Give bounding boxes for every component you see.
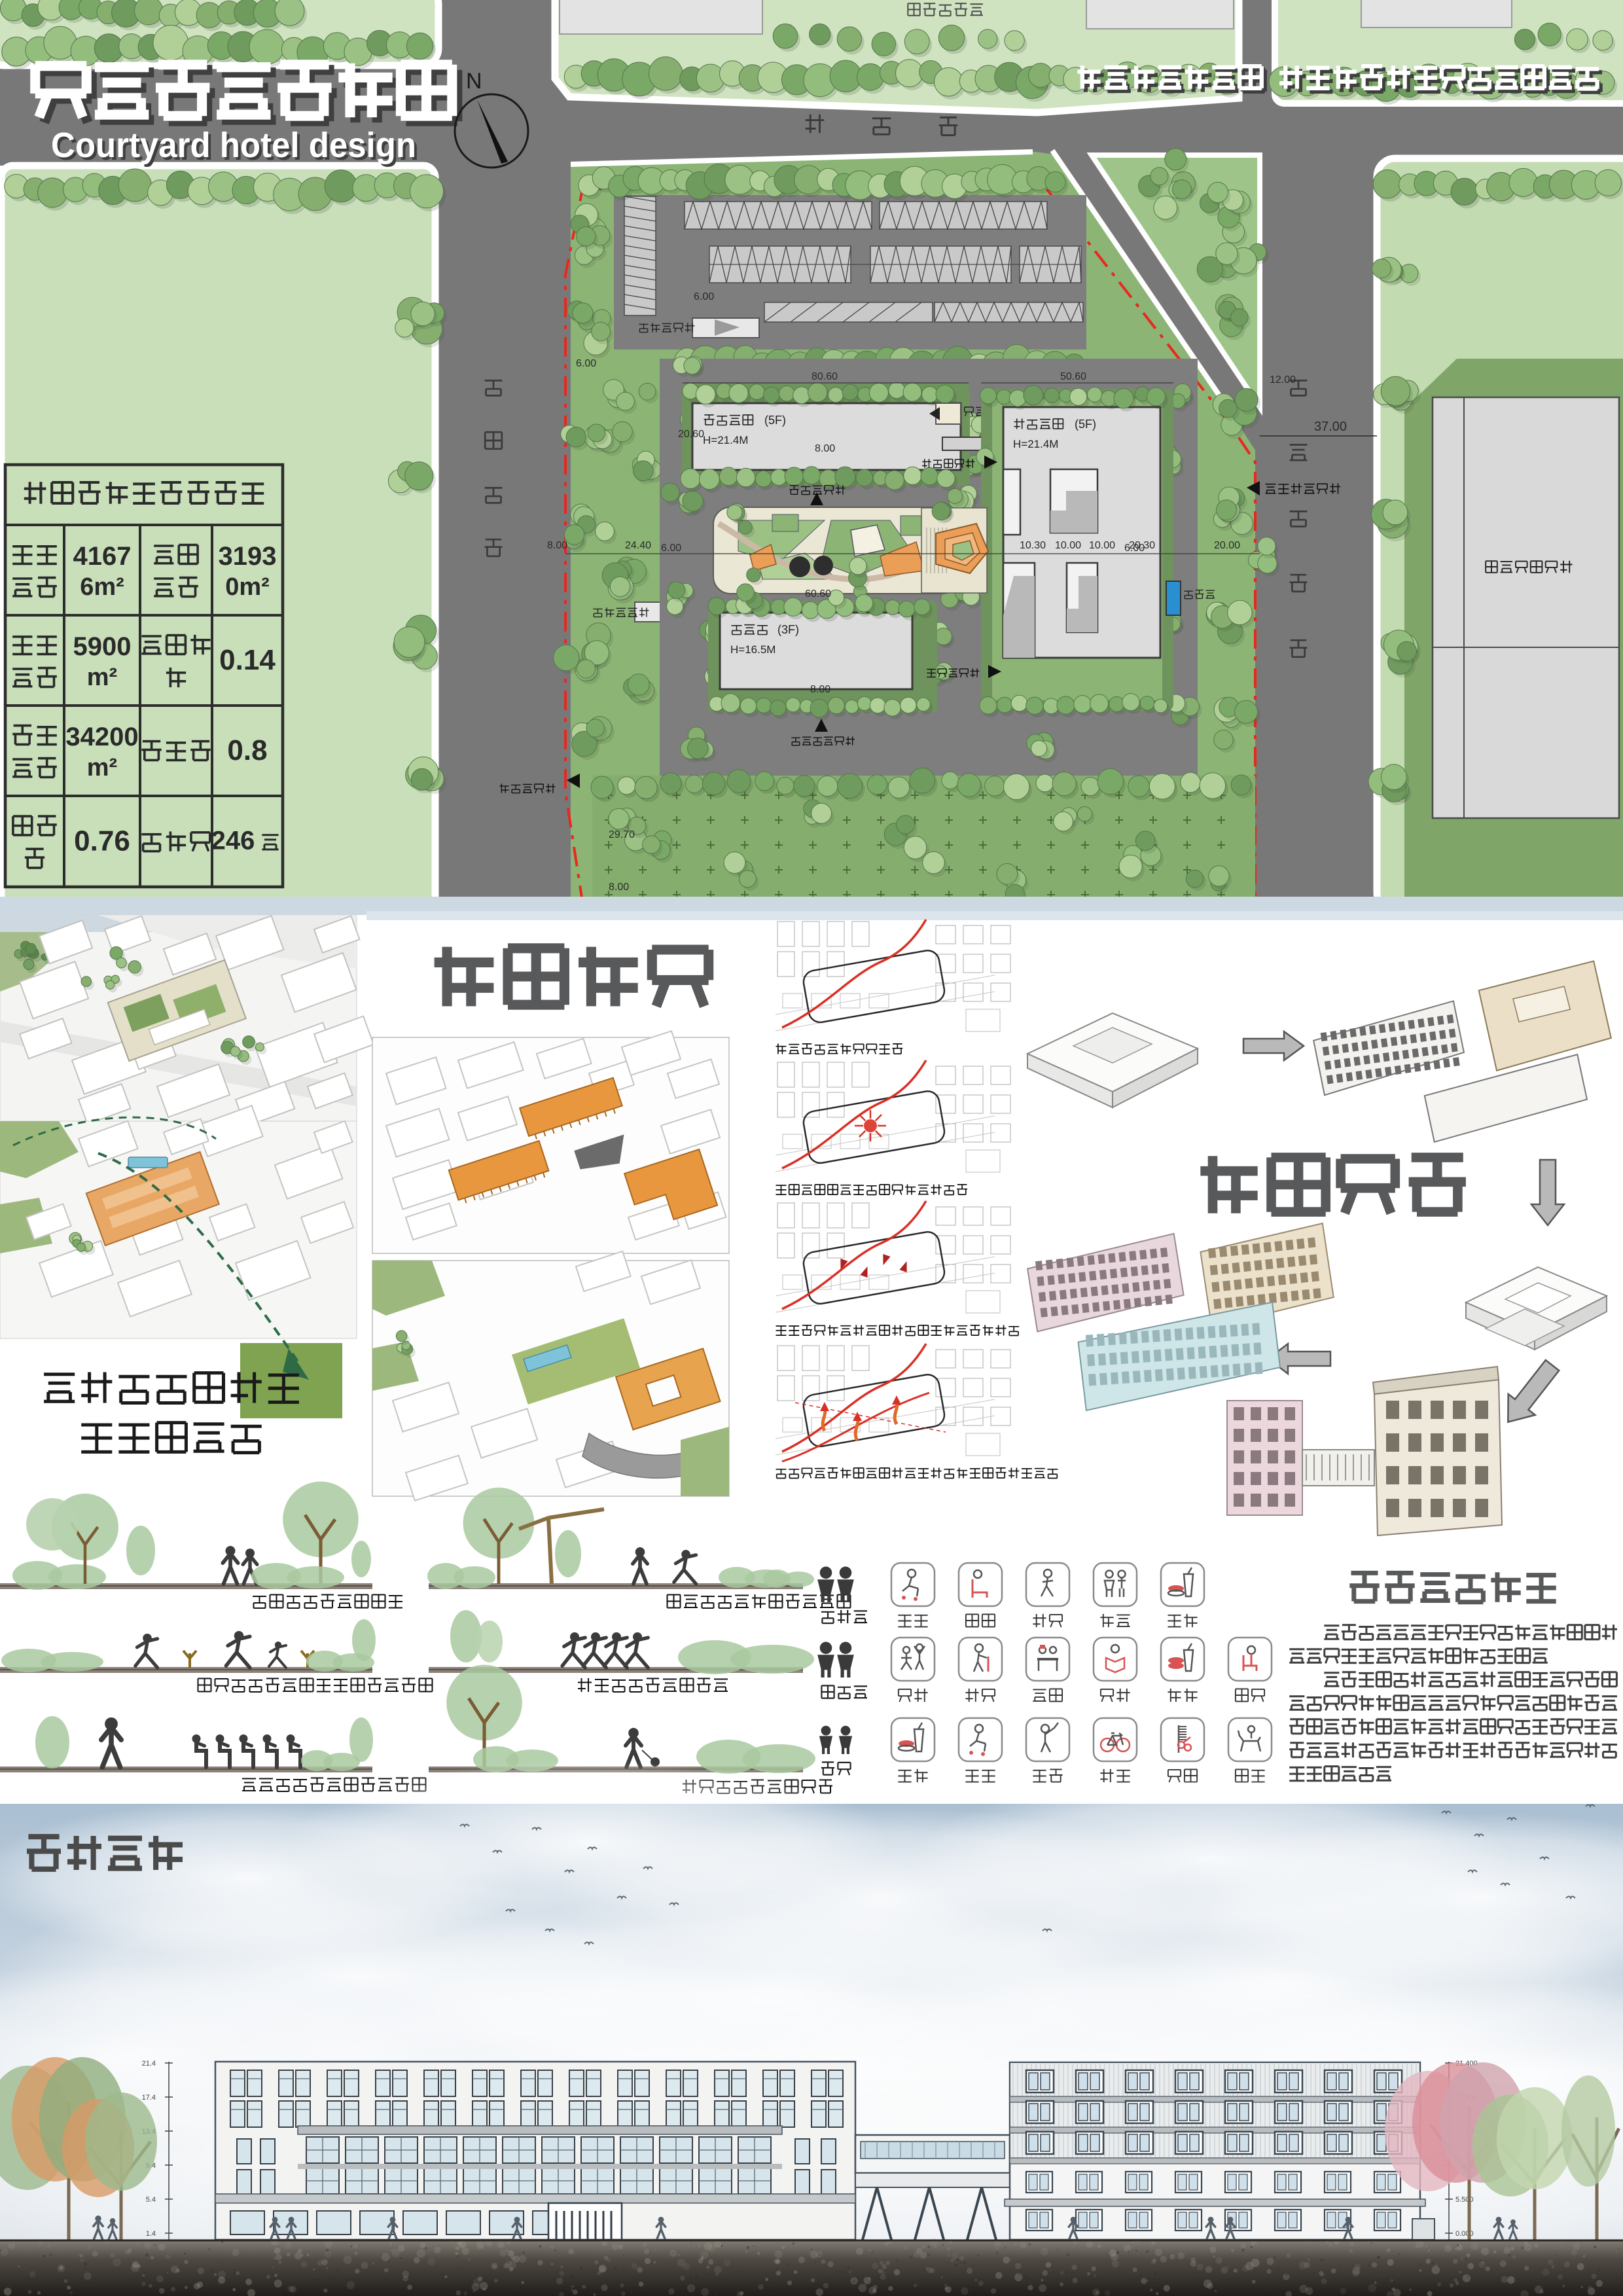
svg-text:8.00: 8.00 <box>609 882 629 893</box>
svg-text:29.70: 29.70 <box>609 829 635 840</box>
svg-text:5.4: 5.4 <box>146 2196 156 2204</box>
svg-text:Courtyard hotel design: Courtyard hotel design <box>51 126 416 165</box>
svg-text:8.00: 8.00 <box>810 684 830 695</box>
svg-text:0.76: 0.76 <box>74 825 130 857</box>
svg-text:12.00: 12.00 <box>1270 374 1296 386</box>
svg-text:H=16.5M: H=16.5M <box>730 643 776 656</box>
svg-text:21.4: 21.4 <box>142 2060 156 2068</box>
svg-text:50.60: 50.60 <box>1060 371 1086 382</box>
svg-text:6m²: 6m² <box>80 573 124 601</box>
svg-text:m²: m² <box>87 754 117 781</box>
svg-text:H=21.4M: H=21.4M <box>1013 438 1058 450</box>
svg-text:1.4: 1.4 <box>146 2230 156 2238</box>
svg-text:80.60: 80.60 <box>811 371 838 382</box>
svg-text:0m²: 0m² <box>225 573 270 601</box>
svg-text:6.00: 6.00 <box>576 358 596 369</box>
svg-text:m²: m² <box>87 664 117 691</box>
svg-text:0.14: 0.14 <box>219 644 276 676</box>
svg-text:20.60: 20.60 <box>678 429 704 440</box>
svg-text:3193: 3193 <box>219 542 277 571</box>
svg-text:8.00: 8.00 <box>815 443 835 454</box>
svg-text:5900: 5900 <box>73 632 132 661</box>
svg-text:20.00: 20.00 <box>1214 540 1240 551</box>
svg-text:0.8: 0.8 <box>227 734 267 766</box>
svg-text:6.00: 6.00 <box>694 291 714 302</box>
svg-text:10.00: 10.00 <box>1055 540 1081 551</box>
svg-text:24.40: 24.40 <box>625 540 651 551</box>
svg-text:17.4: 17.4 <box>142 2094 156 2102</box>
svg-text:4167: 4167 <box>73 542 132 571</box>
svg-text:10.00: 10.00 <box>1089 540 1115 551</box>
svg-text:20.30: 20.30 <box>1129 540 1155 551</box>
svg-text:37.00: 37.00 <box>1314 420 1347 434</box>
svg-text:H=21.4M: H=21.4M <box>703 434 748 446</box>
svg-text:10.30: 10.30 <box>1020 540 1046 551</box>
svg-text:N: N <box>466 69 482 94</box>
svg-text:60.60: 60.60 <box>805 588 831 600</box>
svg-text:(5F): (5F) <box>1075 418 1096 431</box>
svg-text:8.00: 8.00 <box>547 540 567 551</box>
svg-text:34200: 34200 <box>65 723 138 751</box>
svg-text:6.00: 6.00 <box>661 543 681 554</box>
svg-text:(3F): (3F) <box>777 623 799 636</box>
svg-text:246: 246 <box>211 827 255 855</box>
svg-text:(5F): (5F) <box>764 414 786 427</box>
